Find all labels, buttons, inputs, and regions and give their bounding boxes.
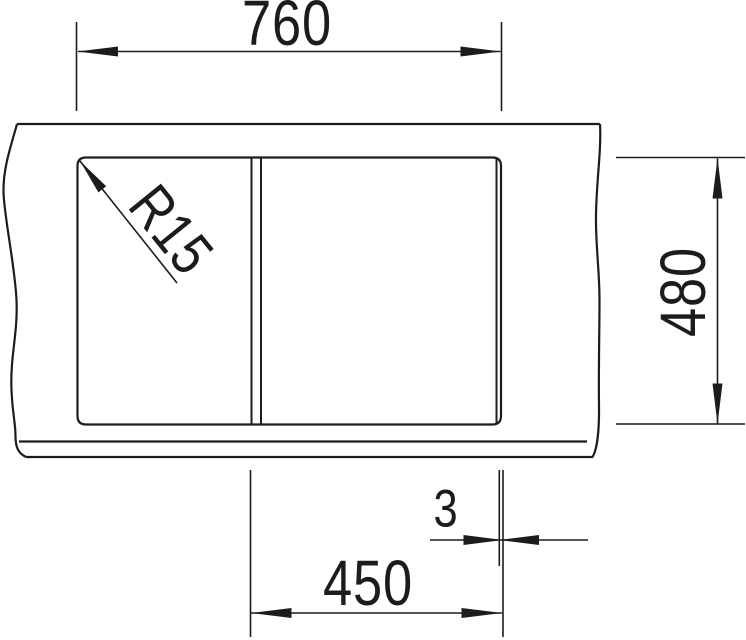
dim-bowl-arrow-right <box>462 608 503 618</box>
dim-overall-depth-label: 480 <box>651 247 715 337</box>
dim-width-arrow-right <box>461 47 502 57</box>
technical-drawing: 760 480 450 3 R15 <box>0 0 746 640</box>
drawing-linework <box>0 0 746 640</box>
countertop-left-break-line <box>3 124 26 457</box>
dim-gap-arrow-rightward <box>464 535 504 545</box>
radius-arrowhead <box>80 161 106 192</box>
dim-depth-arrow-top <box>713 158 723 199</box>
dim-overall-width-label: 760 <box>242 0 332 55</box>
dim-gap-arrow-leftward <box>500 535 540 545</box>
dim-depth-arrow-bottom <box>713 384 723 425</box>
dim-gap-label: 3 <box>434 483 459 536</box>
dim-bowl-arrow-left <box>251 608 292 618</box>
dim-width-arrow-left <box>78 47 119 57</box>
countertop-right-break-line <box>593 124 601 457</box>
dim-bowl-width-label: 450 <box>323 551 413 615</box>
